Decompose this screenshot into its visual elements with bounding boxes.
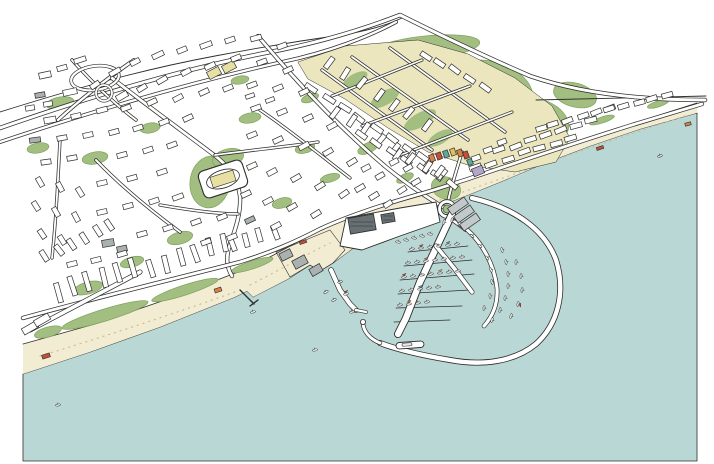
building (71, 211, 80, 222)
building (338, 189, 349, 199)
terrace-row-house (603, 105, 615, 113)
terrace-row-house (633, 99, 645, 107)
building (403, 164, 413, 173)
building (29, 137, 41, 143)
building (57, 135, 68, 142)
terrace-row-house (66, 238, 77, 251)
building (83, 132, 94, 139)
building (240, 190, 251, 199)
building (63, 88, 78, 97)
building (230, 54, 241, 62)
terrace-row-house (190, 244, 201, 263)
building (262, 196, 273, 205)
building (226, 233, 237, 241)
building (397, 185, 407, 194)
building (272, 84, 283, 92)
building (172, 193, 184, 201)
terrace-row-house (242, 233, 250, 248)
terrace-row-house (79, 232, 90, 245)
building (51, 206, 60, 217)
building (266, 167, 277, 176)
building (109, 128, 120, 135)
terrace-row-house (67, 276, 78, 297)
building (198, 88, 209, 97)
building (270, 221, 281, 230)
sea-layer (23, 113, 697, 461)
terrace-row-house (570, 122, 583, 130)
building (222, 84, 233, 92)
building (176, 46, 187, 54)
green-patch (81, 150, 109, 166)
building (74, 56, 87, 64)
building (43, 101, 53, 107)
building (375, 172, 385, 181)
building (31, 200, 41, 211)
building (246, 131, 257, 139)
building (166, 141, 177, 149)
building (322, 147, 333, 156)
terrace-row-house (53, 282, 63, 303)
building (276, 108, 287, 116)
terrace-row-house (617, 102, 629, 110)
building (389, 158, 399, 167)
building (368, 191, 379, 201)
building (182, 114, 193, 123)
terrace-row-house (590, 108, 602, 117)
terrace-row-house (176, 248, 186, 267)
building (57, 64, 68, 71)
building (35, 92, 46, 99)
building (67, 155, 78, 162)
building (180, 67, 191, 76)
building (272, 136, 283, 145)
building (97, 209, 108, 216)
harbour-shed (381, 212, 395, 223)
building (57, 234, 67, 245)
illustrated-map-canvas (0, 0, 714, 464)
terrace-row-house (346, 114, 357, 128)
building (190, 218, 201, 226)
building (310, 209, 321, 219)
terrace-row-house (329, 106, 341, 119)
terrace-row-house (104, 219, 115, 232)
building (172, 93, 183, 102)
terrace-row-house (255, 228, 264, 243)
building (25, 105, 35, 111)
terrace-row-house (161, 255, 170, 274)
terrace-row-house (92, 224, 103, 237)
building (244, 216, 255, 225)
building (123, 202, 134, 209)
building (101, 239, 114, 248)
building (39, 71, 52, 79)
terrace-row-house (39, 249, 50, 262)
building (156, 168, 167, 176)
building (290, 173, 301, 182)
building (97, 180, 108, 187)
building (224, 36, 235, 44)
terrace-row-house (370, 123, 384, 135)
building (137, 230, 148, 237)
building (146, 98, 157, 107)
building (361, 164, 371, 173)
breakwater-knob (360, 319, 365, 324)
building (246, 81, 257, 89)
building (91, 256, 102, 263)
building (346, 157, 357, 167)
building (246, 162, 257, 171)
terrace-row-house (146, 259, 156, 278)
building (411, 178, 421, 187)
sea (23, 113, 697, 461)
building (35, 176, 44, 187)
yacht-cabin (402, 343, 412, 347)
building (200, 41, 213, 50)
building (37, 228, 47, 239)
building (129, 57, 140, 66)
green-patch (230, 74, 249, 85)
road-surface (52, 140, 60, 258)
building (162, 224, 173, 232)
building (302, 114, 313, 123)
building (314, 181, 325, 191)
building (326, 121, 337, 130)
building (96, 106, 108, 114)
building (127, 174, 138, 181)
building (148, 197, 159, 205)
green-patch (238, 111, 261, 125)
building (152, 50, 165, 60)
terrace-row-house (338, 102, 352, 113)
building (67, 260, 78, 267)
terrace-row-house (53, 244, 64, 257)
building (354, 183, 365, 192)
building (75, 186, 85, 197)
building (117, 151, 128, 158)
building (41, 159, 52, 165)
building (158, 118, 169, 126)
building (142, 146, 153, 154)
illustrated-map (0, 0, 714, 464)
building (265, 97, 275, 104)
building (245, 93, 255, 100)
